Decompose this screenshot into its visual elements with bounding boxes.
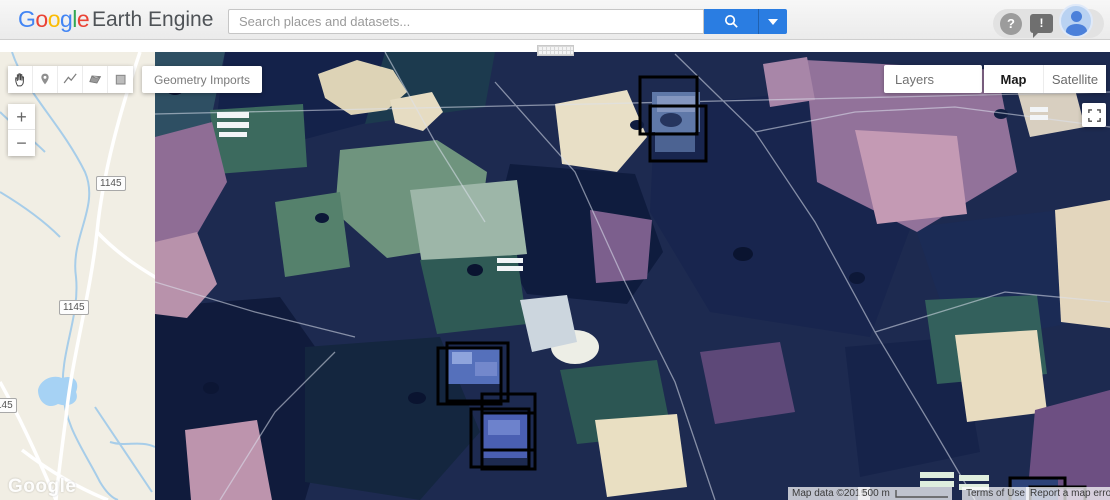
point-marker-tool-button[interactable] [33, 66, 58, 93]
product-name: Earth Engine [92, 8, 213, 32]
zoom-out-button[interactable]: − [8, 130, 35, 156]
terms-of-use-chip: Terms of Use [962, 487, 1029, 500]
geometry-tools-bar [8, 66, 133, 93]
map-type-toggle: Map Satellite [984, 65, 1106, 93]
search-options-button[interactable] [758, 9, 787, 34]
search-icon [723, 13, 740, 30]
search-button[interactable] [704, 9, 758, 34]
fullscreen-button[interactable] [1082, 103, 1106, 127]
logo-letter: g [60, 6, 72, 32]
scale-label: 500 m [862, 488, 890, 499]
report-map-error-link[interactable]: Report a map error [1030, 488, 1110, 499]
avatar-person-icon [1071, 11, 1082, 22]
logo-letter: o [48, 6, 60, 32]
pan-hand-tool-button[interactable] [8, 66, 33, 93]
logo-letter: e [77, 6, 89, 32]
user-avatar[interactable] [1059, 4, 1093, 38]
chevron-down-icon [768, 19, 778, 25]
geometry-imports-button[interactable]: Geometry Imports [142, 66, 262, 93]
scale-bracket [895, 489, 948, 498]
polyline-icon [62, 71, 79, 88]
rectangle-tool-button[interactable] [108, 66, 133, 93]
panel-drag-handle[interactable] [537, 45, 574, 56]
help-button[interactable]: ? [1000, 13, 1022, 35]
report-error-chip: Report a map error [1026, 487, 1110, 500]
scale-bar: 500 m [858, 487, 952, 500]
route-shield: 145 [0, 398, 17, 413]
map-canvas[interactable]: 1145 1145 145 Google [0, 52, 1110, 500]
earth-engine-window: 1145 1145 145 Google [0, 0, 1110, 500]
polygon-icon [87, 71, 104, 88]
route-shield: 1145 [96, 176, 126, 191]
terms-of-use-link[interactable]: Terms of Use [966, 488, 1025, 499]
rectangle-icon [113, 72, 129, 88]
zoom-in-button[interactable]: + [8, 104, 35, 130]
marker-icon [37, 72, 53, 88]
route-shield: 1145 [59, 300, 89, 315]
polyline-tool-button[interactable] [58, 66, 83, 93]
layers-button[interactable]: Layers [884, 65, 982, 93]
feedback-button[interactable]: ! [1030, 14, 1053, 33]
google-logo: Google [18, 6, 89, 33]
zoom-control: + − [8, 104, 35, 156]
google-watermark: Google [8, 476, 76, 498]
fullscreen-icon [1087, 108, 1102, 123]
logo-letter: o [35, 6, 47, 32]
map-type-map-button[interactable]: Map [984, 65, 1044, 93]
top-header: Google Earth Engine ? ! [0, 0, 1110, 40]
map-type-satellite-button[interactable]: Satellite [1044, 65, 1106, 93]
polygon-tool-button[interactable] [83, 66, 108, 93]
hand-icon [12, 71, 29, 88]
search-input[interactable] [228, 9, 704, 34]
satellite-imagery[interactable] [155, 52, 1110, 500]
logo-letter: G [18, 6, 35, 32]
